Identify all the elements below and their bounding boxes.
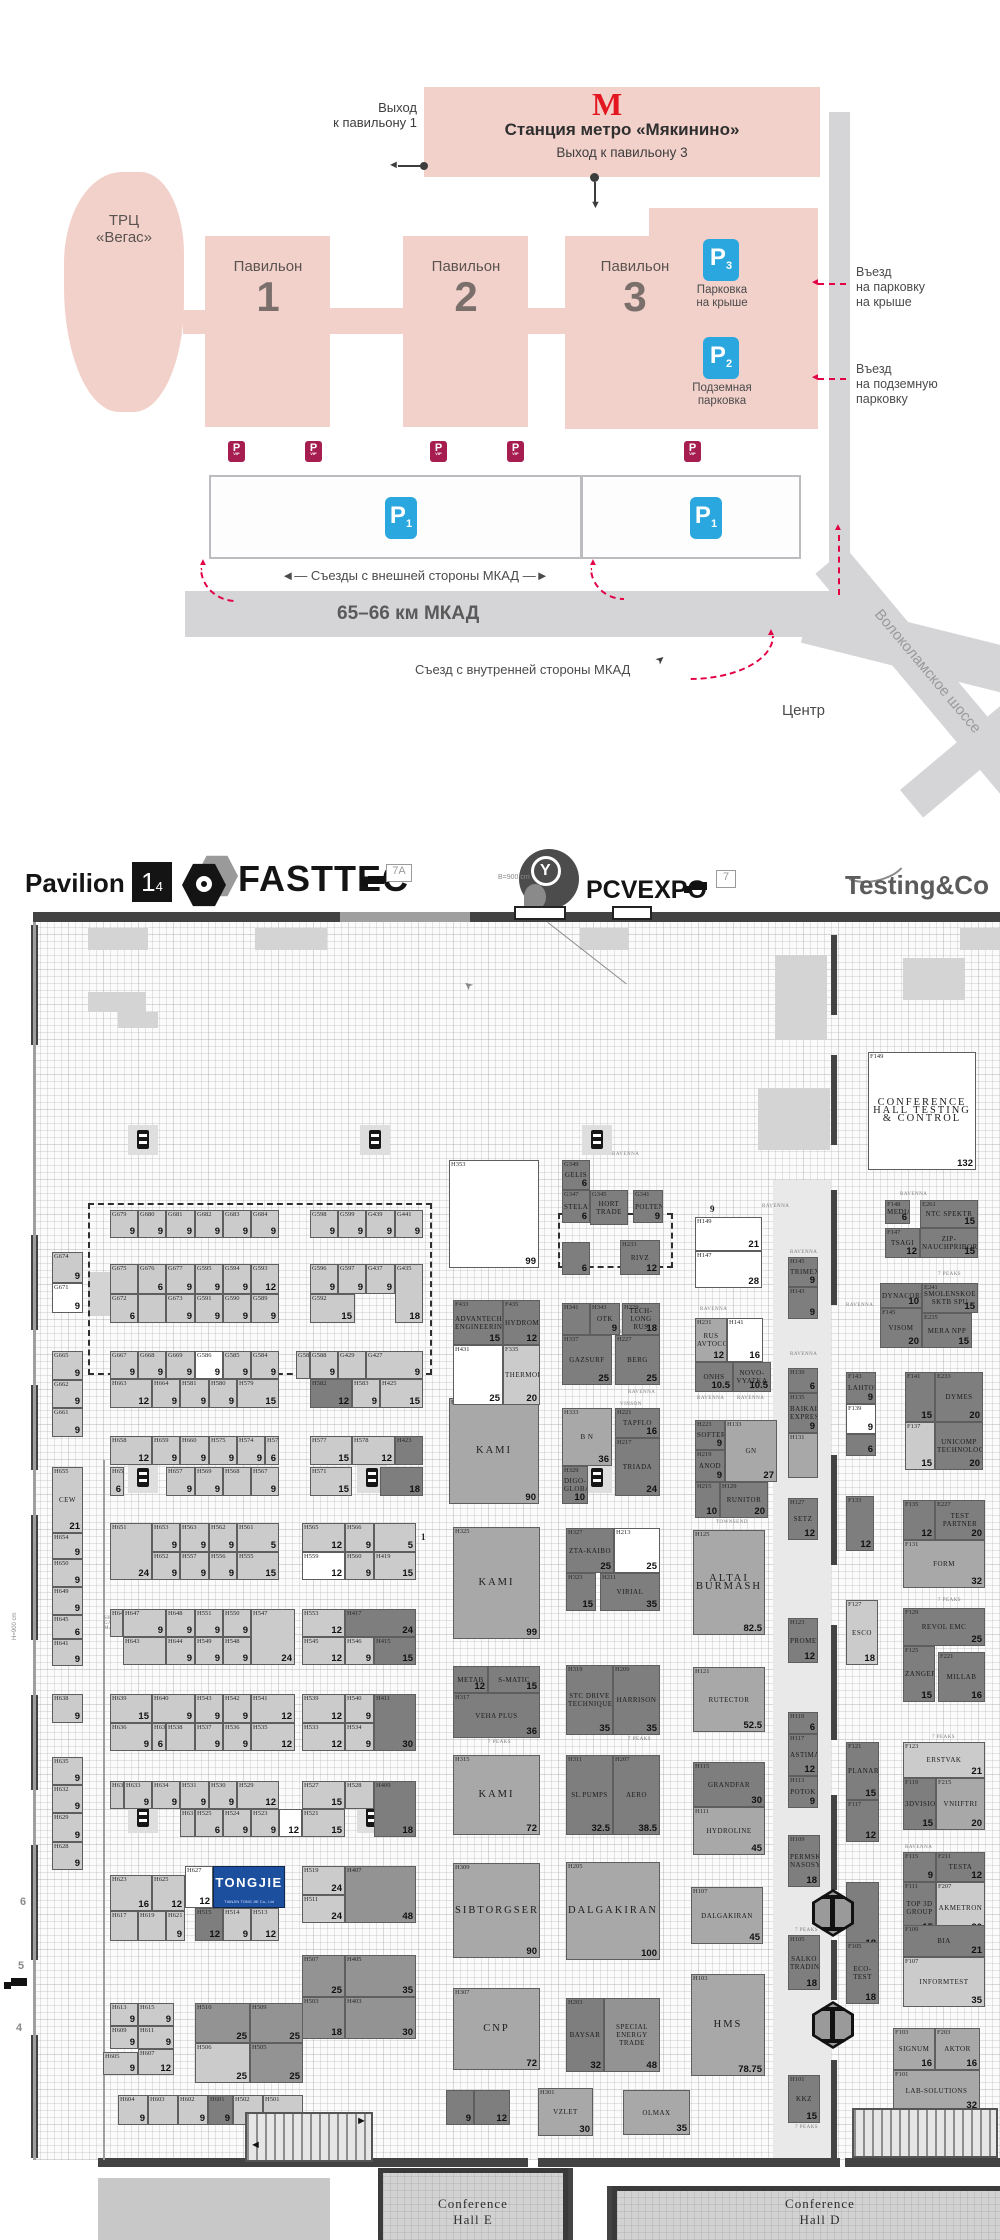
wall-light — [340, 912, 470, 922]
booth-H615: H6159 — [138, 2003, 174, 2026]
booth-H538: H538 — [166, 1723, 195, 1751]
service-block — [758, 1088, 830, 1150]
builder-note: TOWNSEND — [716, 1520, 748, 1525]
column-forklift-icon — [582, 1125, 612, 1155]
booth-H343: H343OTK9 — [590, 1303, 620, 1335]
booth: 12 — [279, 1809, 302, 1837]
vip-parking-badge: PVIP — [430, 441, 447, 462]
booth-H307: H307CNP72 — [453, 1988, 540, 2070]
builder-note: RAVENNA — [737, 1396, 764, 1401]
hall-number-badge: 14 — [132, 862, 172, 902]
booth-H528: H528 — [345, 1781, 374, 1809]
booth-H533: H53312 — [302, 1723, 345, 1751]
booth-H121: H121RUTECTOR52.5 — [693, 1667, 765, 1732]
booth-H525: H5256 — [195, 1809, 223, 1837]
booth-G427: G4279 — [366, 1351, 423, 1379]
booth-H540: H5409 — [345, 1694, 374, 1723]
booth-H583: H5839 — [352, 1379, 380, 1408]
booth-H109: H109PERMSKIE NASOSY18 — [788, 1835, 820, 1887]
booth-H530: H5309 — [209, 1781, 237, 1809]
booth-F123: F123ERSTVAK21 — [903, 1742, 985, 1778]
builder-note: RAVENNA — [697, 1396, 724, 1401]
booth-F121: F121PLANAR15 — [846, 1742, 879, 1800]
booth-H651: H65124 — [110, 1523, 152, 1580]
lower-left-block — [98, 2178, 330, 2240]
booth-H580: H5809 — [209, 1379, 237, 1408]
booth: 9 — [446, 2090, 474, 2125]
booth-H561: H5615 — [237, 1523, 279, 1552]
booth-H547: H54724 — [251, 1609, 295, 1665]
booth-H327: H327ZTA-KAIBO25 — [566, 1528, 614, 1573]
booth-H323: H32315 — [566, 1573, 596, 1611]
booth-F139: F1399 — [846, 1404, 876, 1434]
connector-p2-p3 — [528, 308, 566, 334]
service-block — [960, 928, 1000, 950]
wall — [831, 2060, 837, 2158]
parking-divider — [580, 475, 583, 559]
booth-G585: G5859 — [223, 1351, 251, 1379]
booth: UNICOMP TECHNOLOGY20 — [935, 1422, 983, 1470]
booth-F119: F1193DVISION15 — [903, 1778, 936, 1830]
booth-H105: H105SALKO TRADING18 — [788, 1935, 820, 1990]
booth-H625: H62512 — [152, 1875, 185, 1911]
booth-E241: E241SMOLENSKOE SKTB SPU15 — [922, 1283, 978, 1313]
testing-control-logo-text: Testing&Co — [845, 870, 1000, 901]
booth: OLMAX35 — [623, 2090, 690, 2135]
booth-H611: H6119 — [138, 2026, 174, 2049]
booth-H653: H6539 — [152, 1523, 180, 1552]
service-block — [88, 928, 148, 950]
booth-H581: H5819 — [180, 1379, 209, 1408]
booth-H514: H5149 — [223, 1908, 251, 1941]
parking-p2-badge: P2 — [703, 337, 739, 379]
booth-F211: F211TESTA12 — [936, 1852, 985, 1882]
booth-F148: F148MEDIA6 — [885, 1200, 910, 1224]
booth-H579: H57915 — [237, 1379, 279, 1408]
booth-F135: F13512 — [903, 1500, 935, 1540]
booth-F101: F101LAB-SOLUTIONS32 — [893, 2070, 980, 2112]
booth-F115: F1159 — [903, 1852, 936, 1882]
booth-G672: G6726 — [110, 1294, 138, 1323]
booth-F103: F103SIGNUM16 — [893, 2028, 935, 2070]
booth-G683: G6839 — [223, 1210, 251, 1238]
booth-H536: H5369 — [223, 1723, 251, 1751]
builder-note: 7 PEAKS — [795, 2125, 818, 2130]
booth: SPECIAL ENERGY TRADE48 — [604, 1998, 660, 2072]
booth-H563: H5639 — [180, 1523, 209, 1552]
service-block — [88, 992, 146, 1012]
booth-H510: H51025 — [195, 2003, 250, 2043]
exit-to-pavilion3-label: Выход к павильону 3 — [434, 145, 810, 160]
wall — [831, 935, 837, 1015]
booth-H660: H6609 — [180, 1436, 209, 1465]
booth-F215: F215VNIIFTRI20 — [936, 1778, 985, 1830]
vip-parking-badge: PVIP — [507, 441, 524, 462]
mkad-label: 65–66 км МКАД — [337, 603, 479, 625]
booth-F203: F203AKTOR16 — [935, 2028, 980, 2070]
booth-H535: H53512 — [251, 1723, 295, 1751]
booth-H648: H6489 — [166, 1609, 195, 1637]
booth: METAB12 — [453, 1666, 488, 1693]
booth-H569: H5699 — [195, 1467, 223, 1496]
builder-note: RAVENNA — [846, 1303, 873, 1308]
booth-H301: H301VZLET30 — [538, 2088, 593, 2136]
booth-H221: H221TAPFLO16 — [615, 1408, 660, 1438]
stairs-arrow: ► — [356, 2116, 367, 2126]
booth-H423: H423 — [395, 1436, 423, 1465]
connector-vegas-p1 — [183, 310, 206, 334]
booth-H534: H5349 — [345, 1723, 374, 1751]
booth — [138, 1294, 166, 1323]
wall — [831, 1455, 837, 1565]
inner-exit-arrow: ➤ — [654, 653, 667, 667]
conference-hall-e-label: Conference Hall E — [388, 2196, 558, 2228]
booth-H113: H113POTOK9 — [788, 1776, 818, 1808]
booth-H545: H54512 — [302, 1637, 345, 1665]
booth-H641: H6419 — [52, 1639, 83, 1666]
booth-G588: G5889 — [310, 1351, 338, 1379]
booth: NOVO-VYATKA10.5 — [733, 1362, 771, 1392]
booth-H601: H6019 — [208, 2095, 233, 2125]
booth-G682: G6829 — [195, 1210, 223, 1238]
booth-H503: H50318 — [302, 1997, 345, 2039]
parking-p2-label: Подземная парковка — [684, 382, 760, 408]
booth-H613: H6139 — [110, 2003, 138, 2026]
vip-parking-badge: PVIP — [684, 441, 701, 462]
booth-G667: G6679 — [110, 1351, 138, 1379]
booth-H650: H6509 — [52, 1559, 83, 1587]
booth-H646: H646 — [110, 1609, 123, 1637]
booth-H657: H6579 — [166, 1467, 195, 1496]
booth-H507: H50725 — [302, 1955, 345, 1997]
booth-H213: H21325 — [614, 1528, 660, 1573]
exit1-arrowhead: ◄ — [388, 160, 399, 170]
booth-H233: H233RIVZ12 — [620, 1240, 660, 1275]
booth-H107: H107DALGAKIRAN45 — [691, 1887, 763, 1944]
booth-H560: H5609 — [345, 1552, 374, 1580]
booth-H529: H52912 — [237, 1781, 279, 1809]
exit1-arrow-line — [398, 165, 422, 167]
booth-E233: E233DYMES20 — [935, 1372, 983, 1422]
booth-H656: H6566 — [110, 1467, 124, 1496]
booth-H309: H309SIBTORGSERVICE90 — [453, 1863, 540, 1958]
booth-H566: H5669 — [345, 1523, 374, 1552]
wall-light — [33, 922, 36, 2160]
pcvexpo-y-icon: Y — [540, 862, 551, 880]
booth-H568: H568 — [223, 1467, 251, 1496]
booth-G597: G5979 — [338, 1264, 366, 1294]
booth-F105: F105ECO-TEST18 — [846, 1942, 879, 2004]
booth-H562: H5629 — [209, 1523, 237, 1552]
arrow-left-icon: ◄— — [281, 568, 310, 583]
booth-H207: H207AERO38.5 — [613, 1755, 660, 1835]
booth-G599: G5999 — [338, 1210, 366, 1238]
red-dash-entry-underground — [818, 378, 846, 380]
wall — [831, 1625, 837, 1740]
booth-H509: H50925 — [250, 2003, 303, 2043]
vegas-label: ТРЦ «Вегас» — [72, 212, 176, 246]
booth-H623: H62316 — [110, 1875, 152, 1911]
booth-H575: H5759 — [209, 1436, 237, 1465]
booth-H315: H315KAMI72 — [453, 1755, 540, 1835]
booth-H559: H55912 — [302, 1552, 345, 1580]
connector-p1-p2 — [330, 308, 404, 334]
booth-F433: F433ADVANTECH ENGINEERING15 — [453, 1300, 503, 1345]
booth-H115: H115GRANDFAR30 — [693, 1762, 765, 1807]
truck-icon — [360, 876, 384, 887]
booth-H123: H123PROMETEI12 — [788, 1618, 818, 1663]
booth-H145: H145TRIMEX9 — [788, 1257, 818, 1287]
exit3-dot — [590, 173, 599, 182]
booth-H627: H62712 — [185, 1866, 213, 1908]
booth-H574: H5749 — [237, 1436, 265, 1465]
booth: DYNACORE10 — [880, 1283, 922, 1308]
booth-F149: F149CONFERENCE HALL TESTING & CONTROL132 — [868, 1052, 976, 1170]
booth-H567: H5679 — [251, 1467, 279, 1496]
booth-H227: H227BERG25 — [615, 1335, 660, 1385]
booth-H663: H66312 — [110, 1379, 152, 1408]
booth-H141: H14116 — [727, 1318, 763, 1362]
booth-H513: H51312 — [251, 1908, 279, 1941]
booth-H139: H1396 — [788, 1368, 818, 1393]
booth-F147: F147TSAGI12 — [885, 1228, 920, 1258]
booth-G661: G6619 — [52, 1408, 83, 1437]
pavilion3-label: Павильон3 — [585, 258, 685, 317]
red-arrowhead-up: ▲ — [766, 628, 776, 638]
builder-note: RAVENNA — [628, 1390, 655, 1395]
booth-H664: H6649 — [152, 1379, 180, 1408]
booth-H602: H6029 — [178, 2095, 208, 2125]
booth-H577: H57715 — [310, 1436, 352, 1465]
parking-p1-badge-2: P1 — [690, 497, 722, 539]
booth-G669: G6699 — [166, 1351, 195, 1379]
exit3-arrowhead: ▼ — [590, 200, 601, 210]
booth-H654: H6549 — [52, 1533, 83, 1559]
booth-H555: H55515 — [237, 1552, 279, 1580]
booth-H111: H111HYDROLINE45 — [693, 1807, 765, 1855]
booth-G596: G5969 — [310, 1264, 338, 1294]
booth-H542: H5429 — [223, 1694, 251, 1723]
booth-H521: H52115 — [302, 1809, 345, 1837]
booth-H409: H40918 — [374, 1781, 416, 1837]
booth-G665: G6659 — [52, 1351, 83, 1380]
wall — [831, 1190, 837, 1305]
builder-note: RAVENNA — [790, 1250, 817, 1255]
booth-H229: H229TECH-LONG RUS18 — [622, 1303, 660, 1335]
booth-H125: H125ALTAI BURMASH82.5 — [693, 1530, 765, 1635]
booth-F143: F143LAHTONE9 — [846, 1372, 876, 1404]
booth-H635: H6359 — [52, 1757, 83, 1785]
booth-H223: H223SOFTER9 — [695, 1420, 725, 1450]
exit-to-pavilion1-label: Выход к павильону 1 — [302, 100, 417, 130]
left-gate-5-label: 5 — [18, 1960, 24, 1972]
column-forklift-icon — [128, 1463, 158, 1493]
booth-H573: H5736 — [265, 1436, 279, 1465]
column-forklift-icon — [128, 1125, 158, 1155]
gate-7-label: 7 — [716, 870, 736, 888]
booth-H219: H219ANOD9 — [695, 1450, 725, 1482]
builder-note: VINSON — [620, 1402, 642, 1407]
booth-H556: H5569 — [209, 1552, 237, 1580]
booth-H407: H40748 — [345, 1866, 416, 1923]
booth-G676: G6766 — [138, 1264, 166, 1294]
booth-F125: F125ZANGER15 — [903, 1646, 935, 1702]
booth-G674: G6749 — [52, 1252, 83, 1283]
builder-note: 7 PEAKS — [795, 1928, 818, 1933]
gate-opening — [514, 906, 566, 920]
booth-H638: H6389 — [52, 1694, 83, 1723]
booth-H649: H6499 — [52, 1587, 83, 1615]
booth-H337: H337GAZSURF25 — [562, 1335, 612, 1385]
booth-H549: H5499 — [195, 1637, 223, 1665]
booth-H582: H58212 — [310, 1379, 352, 1408]
column-forklift-icon — [360, 1125, 390, 1155]
booth-F117: F11712 — [846, 1800, 879, 1842]
wall — [831, 1940, 837, 2000]
entry-roof-parking-label: Въезд на парковку на крыше — [856, 265, 925, 310]
booth-H415: H41515 — [374, 1637, 416, 1665]
inner-exit-label: Съезд с внутренней стороны МКАД — [415, 662, 630, 677]
booth-H403: H40330 — [345, 1997, 416, 2039]
booth-H341: H341 — [562, 1303, 590, 1335]
booth-F129: F129REVOL EMC25 — [903, 1608, 985, 1646]
booth-H640: H6409 — [152, 1694, 195, 1723]
service-block — [903, 958, 965, 1000]
booth-H531: H5319 — [180, 1781, 209, 1809]
booth-H634: H6349 — [152, 1781, 180, 1809]
booth-H129: H129RUNITOR20 — [720, 1482, 768, 1518]
booth-H143: H1439 — [788, 1287, 818, 1319]
left-gate-6-label: 6 — [20, 1896, 26, 1908]
builder-note: RAVENNA — [762, 1204, 789, 1209]
booth-H644: H6449 — [166, 1637, 195, 1665]
booth-G680: G6809 — [138, 1210, 166, 1238]
booth-H117: H117ASTIMA12 — [788, 1734, 818, 1776]
booth-G584: G5849 — [251, 1351, 279, 1379]
service-block — [580, 928, 628, 950]
booth-G592: G59215 — [310, 1294, 355, 1323]
parking-p3-label: Парковка на крыше — [686, 284, 758, 310]
wall — [568, 2168, 573, 2240]
booth-H411: H41130 — [374, 1694, 416, 1751]
booth-H546: H5469 — [345, 1637, 374, 1665]
service-block — [118, 1012, 158, 1028]
booth-H523: H5239 — [251, 1809, 279, 1837]
booth-H655: H655CEW21 — [52, 1467, 83, 1533]
booth-H511: H51124 — [302, 1895, 345, 1923]
booth-G662: G6629 — [52, 1380, 83, 1408]
parking-p1-badge: P1 — [385, 497, 417, 539]
builder-note: RAVENNA — [612, 1152, 639, 1157]
booth-H609: H6099 — [110, 2026, 138, 2049]
booth-H231: H231RUS AVTOCOM12 — [695, 1318, 727, 1362]
staircase-right — [852, 2108, 998, 2158]
booth-F107: F107INFORMTEST35 — [903, 1957, 985, 2007]
arrow-right-icon: —► — [519, 568, 548, 583]
booth-H319: H319STC DRIVE TECHNIQUE35 — [566, 1665, 613, 1735]
booth-G429: G429 — [338, 1351, 366, 1379]
booth-H431: H43125 — [453, 1345, 503, 1405]
vip-parking-badge: PVIP — [228, 441, 245, 462]
booth-G439: G4399 — [366, 1210, 395, 1238]
booth-H119: H1196 — [788, 1712, 818, 1734]
booth-F137: F13715 — [905, 1422, 935, 1470]
booth: 6 — [846, 1434, 876, 1456]
gate-7a-label: 7A — [386, 864, 412, 882]
booth-H628: H6289 — [52, 1842, 83, 1870]
booth-G589: G5899 — [251, 1294, 279, 1323]
booth-E227: E227TEST PARTNER20 — [935, 1500, 985, 1540]
booth-H515: H51512 — [195, 1908, 223, 1941]
booth-G345: G345HORT TRADE — [590, 1190, 628, 1225]
builder-note: RAVENNA — [790, 1352, 817, 1357]
conference-hall-d-label: Conference Hall D — [700, 2196, 940, 2228]
booth: S-MATIC15 — [488, 1666, 540, 1693]
booth-H527: H52715 — [302, 1781, 345, 1809]
booth-G437: G4379 — [366, 1264, 395, 1294]
booth-H333: H333B N36 — [562, 1408, 612, 1466]
red-arrowhead-up: ▲ — [833, 523, 843, 533]
booth-E261: E261NTC SPEKTR15 — [920, 1200, 978, 1228]
booth-H217: H217TRIADA24 — [615, 1438, 660, 1496]
booth-G679: G6799 — [110, 1210, 138, 1238]
booth-H325: H325KAMI99 — [453, 1527, 540, 1639]
left-gate-4-label: 4 — [16, 2022, 22, 2034]
service-block — [255, 928, 327, 950]
h900-dimension-label: H=900 cm — [12, 1612, 18, 1640]
booth-H215: H21510 — [695, 1482, 720, 1518]
booth: 5 — [374, 1523, 416, 1552]
booth-H643: H643 — [123, 1637, 166, 1665]
booth-G586: G5869 — [195, 1351, 223, 1379]
booth-H605: H6059 — [103, 2052, 138, 2075]
booth-H353: H35399 — [449, 1160, 539, 1268]
red-arrowhead-up: ▲ — [198, 558, 208, 568]
red-arrowhead: ◄ — [810, 373, 820, 383]
booth-G590: G5909 — [223, 1294, 251, 1323]
booth-G677: G6779 — [166, 1264, 195, 1294]
wall — [538, 2158, 840, 2167]
booth-F133: F13312 — [846, 1496, 874, 1551]
booth-G441: G4419 — [395, 1210, 423, 1238]
booth-G595: G5959 — [195, 1264, 223, 1294]
booth-H571: H57115 — [310, 1467, 352, 1496]
booth-G598: G5989 — [310, 1210, 338, 1238]
booth-H553: H55312 — [302, 1609, 345, 1637]
booth-F335: F335THERMOFORM20 — [503, 1345, 540, 1405]
booth-G668: G6689 — [138, 1351, 166, 1379]
booth-H658: H65812 — [110, 1436, 152, 1465]
booth-F221: F221MILLAB16 — [938, 1652, 985, 1702]
booth-G587: G587 — [296, 1351, 310, 1379]
red-dash-road-up — [838, 535, 840, 595]
pavilion-word: Pavilion — [25, 868, 125, 899]
booth-H205: H205DALGAKIRAN100 — [566, 1862, 660, 1960]
booth-H637: H6376 — [152, 1723, 166, 1751]
builder-note: 7 PEAKS — [938, 1272, 961, 1277]
booth-H659: H6599 — [152, 1436, 180, 1465]
booth-H543: H5439 — [195, 1694, 223, 1723]
b900-dimension-label: B=900 cm — [498, 874, 530, 881]
booth-H632: H6329 — [52, 1785, 83, 1813]
pavilion2-label: Павильон2 — [416, 258, 516, 317]
booth-H631: H631 — [180, 1809, 195, 1837]
builder-note: RAVENNA — [700, 1307, 727, 1312]
screenshot-root: М Станция метро «Мякинино» Выход к павил… — [0, 0, 1000, 2240]
booth: ZIP-NAUCHPRIBOR15 — [920, 1228, 978, 1258]
builder-note: RAVENNA — [900, 1192, 927, 1197]
booth-H506: H50625 — [195, 2043, 250, 2083]
